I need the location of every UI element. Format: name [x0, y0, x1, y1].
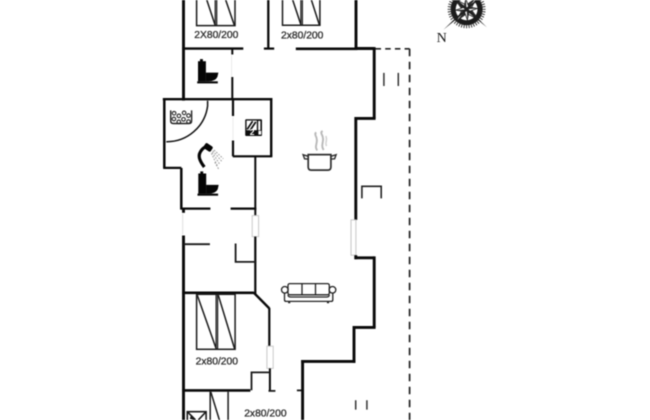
svg-text:2x80/200: 2x80/200 [244, 408, 287, 419]
svg-text:2x80/200: 2x80/200 [281, 31, 324, 42]
svg-text:N: N [437, 31, 447, 46]
svg-text:2X80/200: 2X80/200 [194, 30, 238, 41]
svg-text:2: 2 [250, 127, 255, 137]
svg-text:2x80/200: 2x80/200 [196, 356, 239, 367]
